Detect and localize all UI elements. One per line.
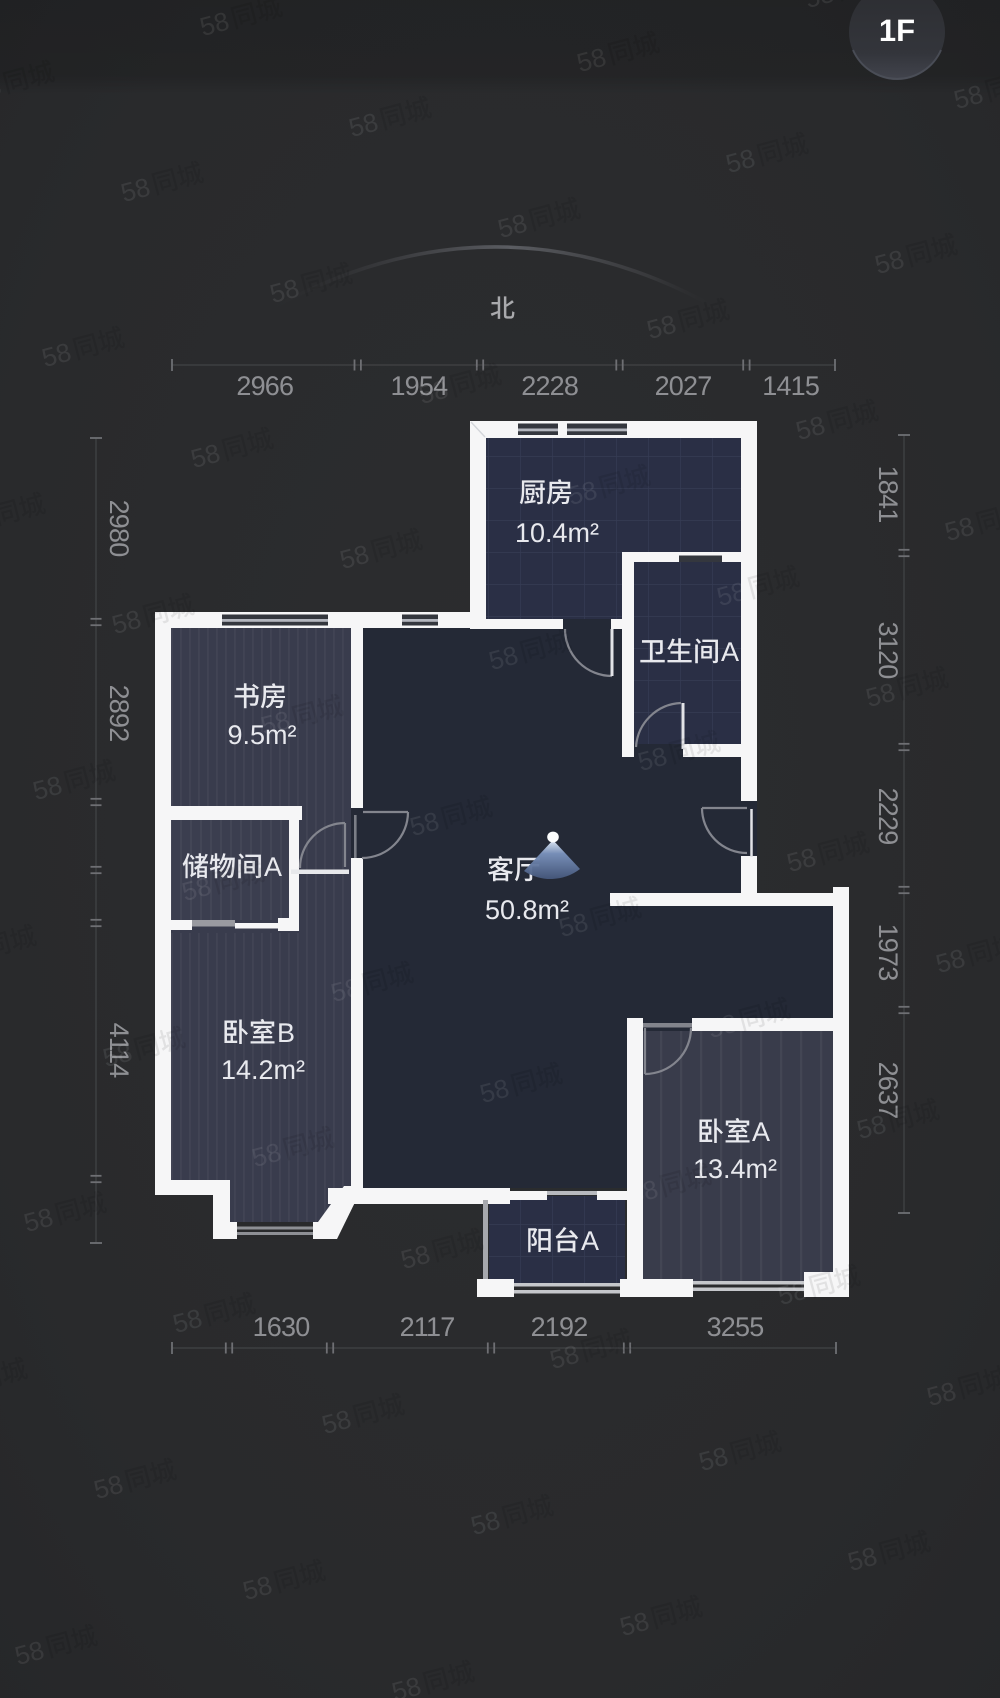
svg-text:2892: 2892 [104, 685, 134, 742]
svg-text:B: B [277, 1018, 295, 1048]
svg-text:2117: 2117 [400, 1312, 455, 1342]
svg-text:2966: 2966 [236, 371, 293, 401]
svg-text:2229: 2229 [873, 788, 903, 845]
svg-text:A: A [581, 1226, 599, 1256]
svg-text:A: A [264, 852, 282, 882]
svg-text:10.4m²: 10.4m² [515, 518, 599, 548]
svg-text:2027: 2027 [655, 371, 712, 401]
svg-text:1F: 1F [879, 13, 915, 48]
svg-text:1841: 1841 [873, 466, 903, 523]
svg-text:3255: 3255 [707, 1312, 764, 1342]
svg-text:1415: 1415 [762, 371, 819, 401]
svg-text:1630: 1630 [253, 1312, 310, 1342]
svg-text:3120: 3120 [873, 622, 903, 679]
svg-text:14.2m²: 14.2m² [221, 1055, 305, 1085]
svg-text:A: A [752, 1117, 770, 1147]
svg-text:1973: 1973 [873, 924, 903, 981]
svg-text:2228: 2228 [521, 371, 578, 401]
svg-text:2980: 2980 [104, 500, 134, 557]
svg-text:2192: 2192 [531, 1312, 588, 1342]
svg-text:A: A [721, 637, 739, 667]
